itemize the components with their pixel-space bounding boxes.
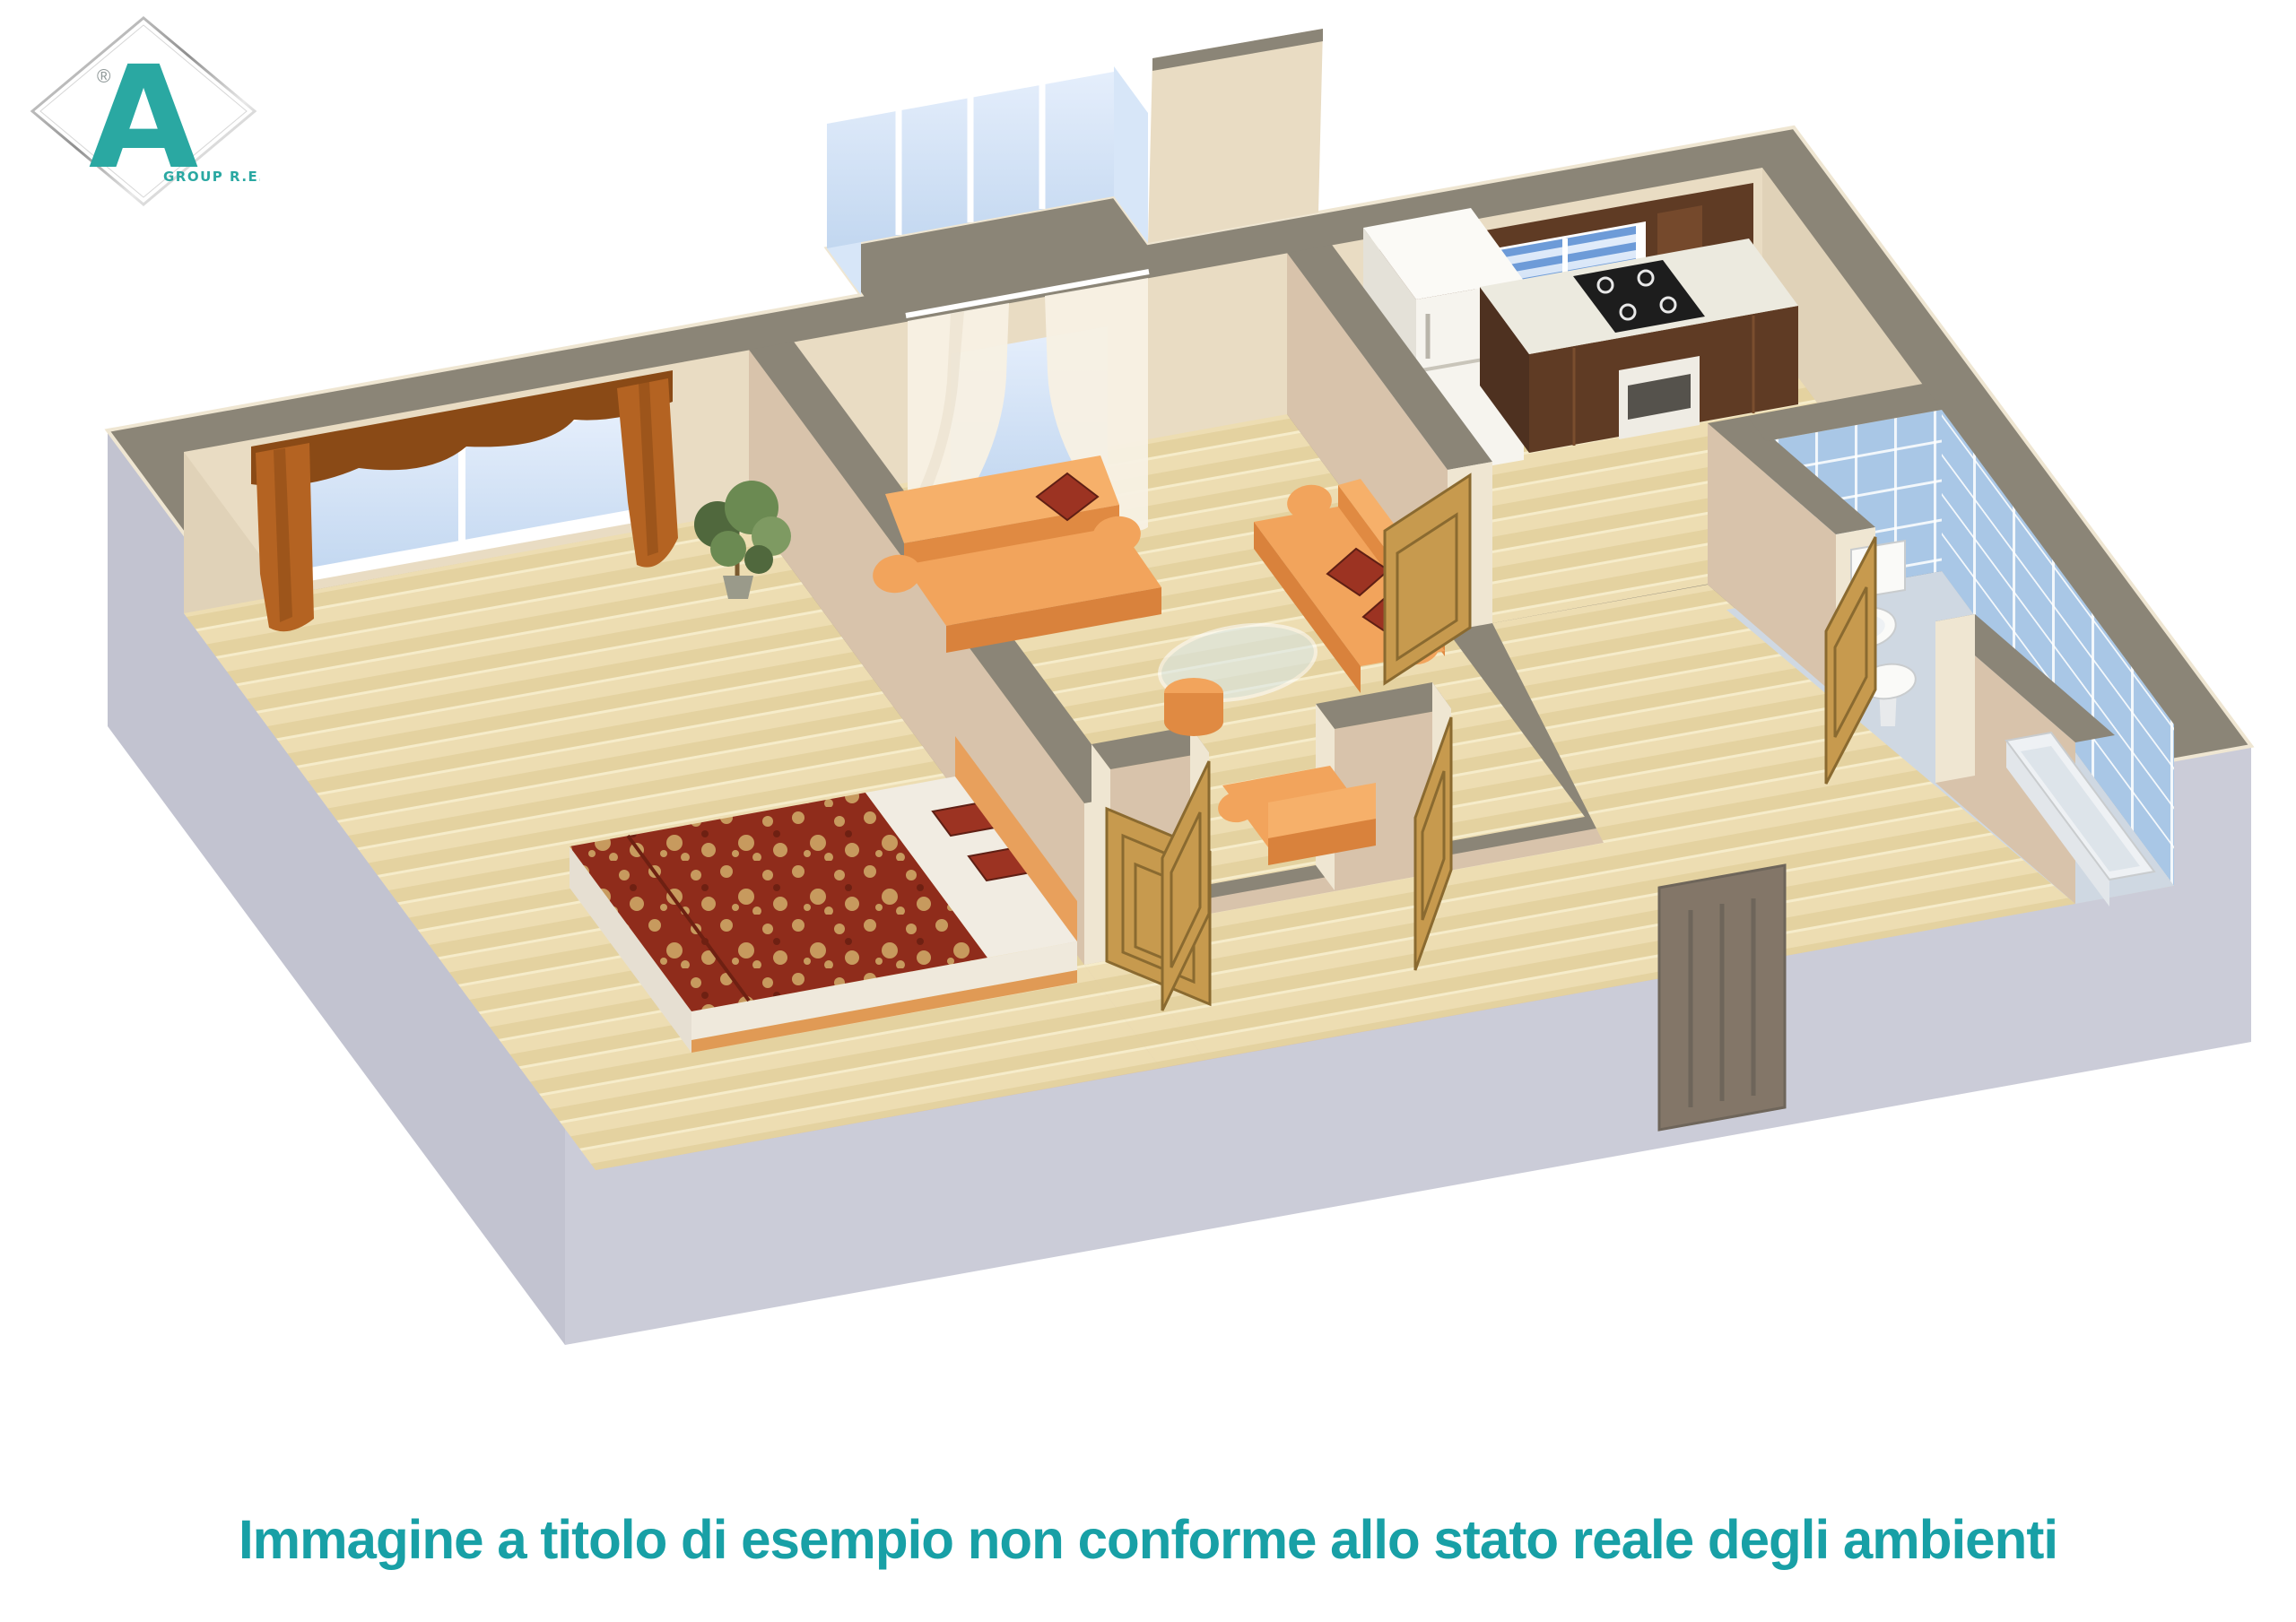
floorplan-rendering bbox=[0, 0, 2296, 1622]
ottoman-bottom bbox=[1164, 707, 1223, 736]
tall-wall bbox=[1148, 29, 1323, 243]
disclaimer-caption: Immagine a titolo di esempio non conform… bbox=[17, 1508, 2279, 1571]
bath-diagonal-capB bbox=[1935, 614, 1975, 783]
agency-logo: ® A GROUP R.E. bbox=[27, 14, 260, 215]
page: ® A GROUP R.E. Immagine a titolo di esem… bbox=[0, 0, 2296, 1622]
logo-graphic: ® A GROUP R.E. bbox=[27, 14, 260, 215]
logo-subtext: GROUP R.E. bbox=[163, 169, 260, 185]
entry-door bbox=[1659, 865, 1785, 1130]
